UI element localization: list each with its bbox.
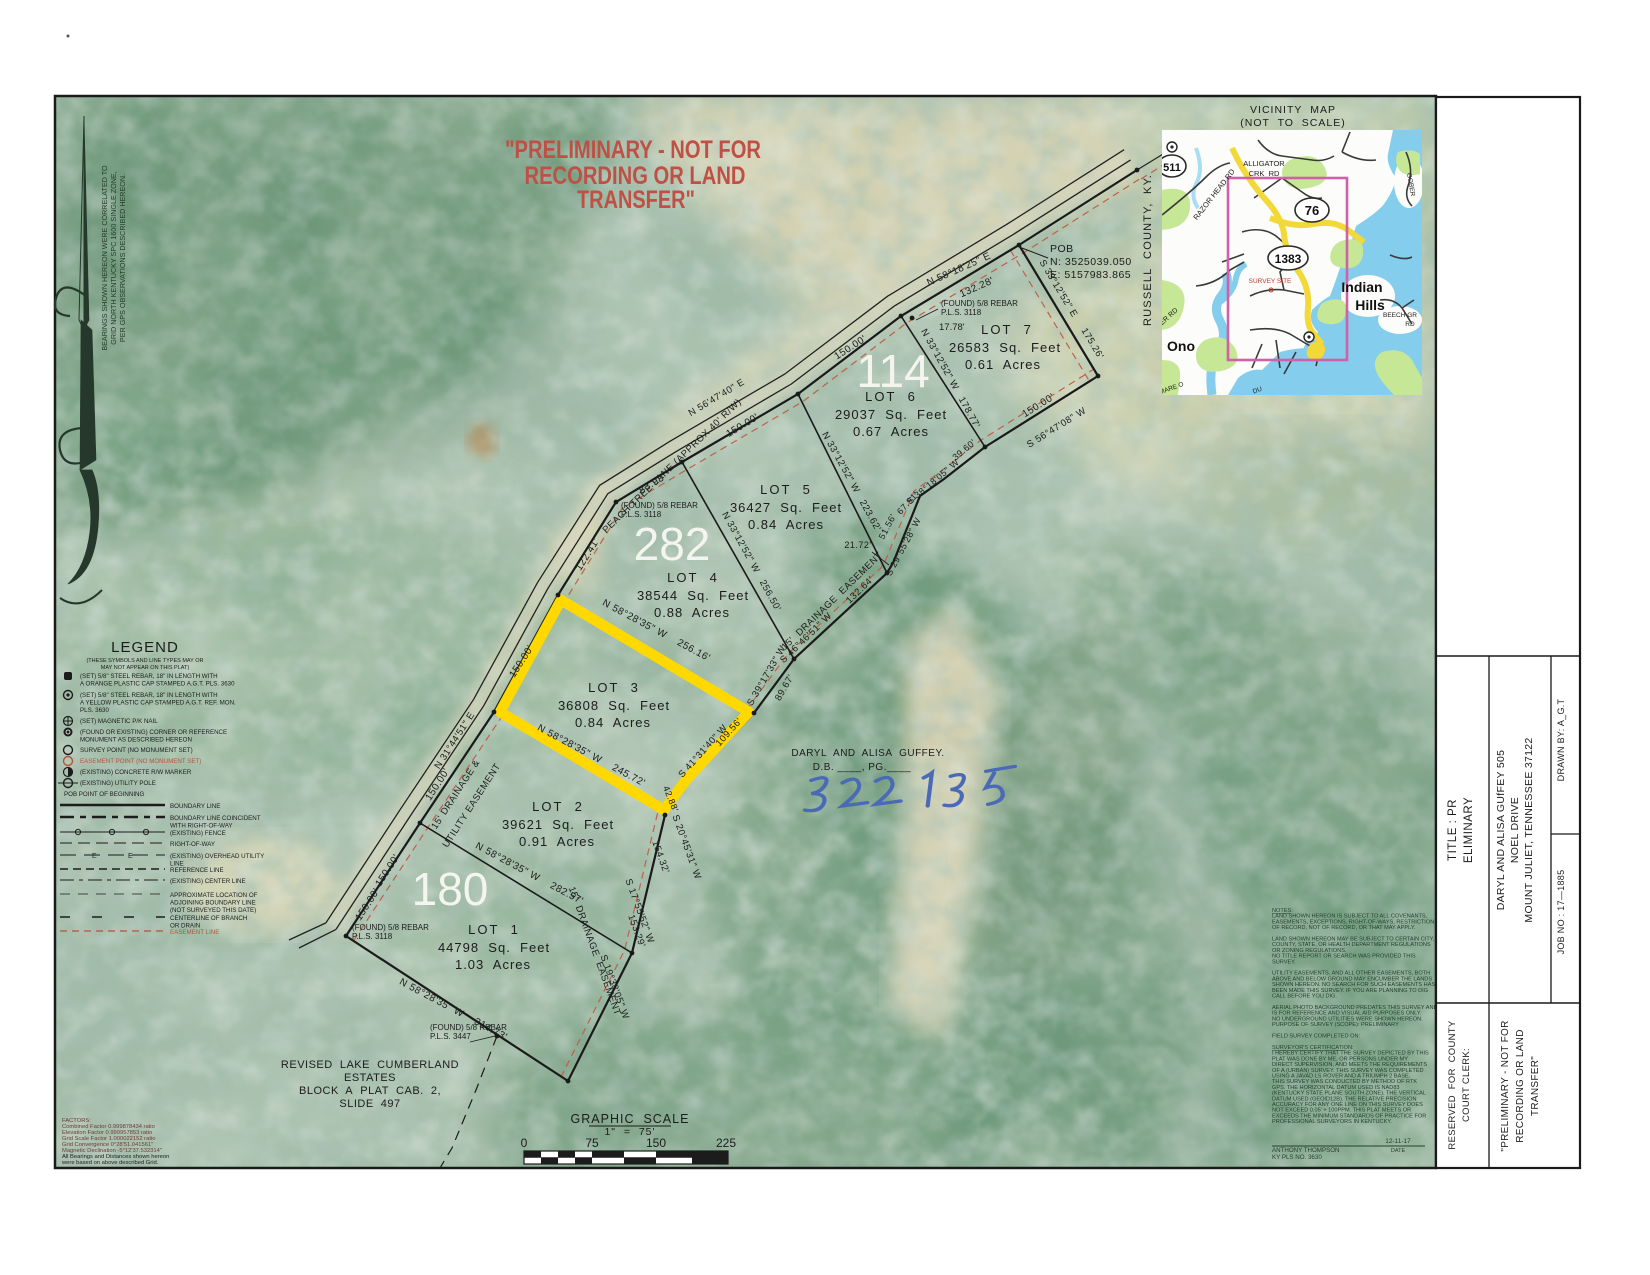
svg-text:"PRELIMINARY - NOT FOR: "PRELIMINARY - NOT FOR [505,136,761,164]
svg-text:VICINITY MAP: VICINITY MAP [1250,104,1336,116]
svg-text:44798 Sq. Feet: 44798 Sq. Feet [438,940,550,955]
svg-text:(SET) 5/8" STEEL REBAR, 18" IN: (SET) 5/8" STEEL REBAR, 18" IN LENGTH WI… [80,673,218,680]
svg-text:(FOUND) 5/8 REBAR: (FOUND) 5/8 REBAR [941,299,1018,308]
svg-text:75: 75 [585,1136,599,1150]
svg-text:MOUNT JULIET, TENNESSEE 37122: MOUNT JULIET, TENNESSEE 37122 [1523,737,1535,922]
svg-text:DRAWN BY: A_G.T: DRAWN BY: A_G.T [1556,698,1566,781]
svg-text:EASEMENT POINT (NO MONUMENT SE: EASEMENT POINT (NO MONUMENT SET) [80,758,201,765]
svg-text:A YELLOW PLASTIC CAP STAMPED A: A YELLOW PLASTIC CAP STAMPED A.G.T. REF.… [80,700,236,707]
svg-text:E: E [92,853,97,860]
svg-text:76: 76 [1305,203,1319,218]
svg-text:(EXISTING) FENCE: (EXISTING) FENCE [170,830,226,837]
svg-text:POB POINT OF BEGINNING: POB POINT OF BEGINNING [64,791,145,798]
svg-text:1.03 Acres: 1.03 Acres [455,957,531,972]
svg-text:1383: 1383 [1275,252,1302,266]
svg-text:BOUNDARY LINE COINCIDENT: BOUNDARY LINE COINCIDENT [170,815,261,822]
svg-text:were based on above described: were based on above described Grid. [61,1160,159,1166]
svg-text:(FOUND) 5/8 REBAR: (FOUND) 5/8 REBAR [621,501,698,510]
svg-text:P.L.S. 3118: P.L.S. 3118 [621,510,662,519]
svg-text:150: 150 [646,1136,666,1150]
svg-text:180: 180 [412,863,489,915]
svg-text:29037 Sq. Feet: 29037 Sq. Feet [835,407,947,422]
svg-text:FIELD SURVEY COMPLETED ON:: FIELD SURVEY COMPLETED ON: [1272,1033,1361,1039]
svg-text:BEARINGS SHOWN HEREON WERE COR: BEARINGS SHOWN HEREON WERE CORRELATED TO [100,165,109,351]
svg-text:LOT 6: LOT 6 [865,389,917,404]
svg-text:SLIDE 497: SLIDE 497 [339,1098,400,1110]
svg-text:0.84 Acres: 0.84 Acres [748,517,824,532]
svg-text:SURVEY POINT (NO MONUMENT SET): SURVEY POINT (NO MONUMENT SET) [80,747,193,754]
svg-text:12-11-17: 12-11-17 [1385,1138,1411,1145]
svg-text:N: 3525039.050: N: 3525039.050 [1050,256,1132,268]
svg-text:REFERENCE LINE: REFERENCE LINE [170,867,224,874]
svg-text:DARYL AND ALISA GUfFEY 505: DARYL AND ALISA GUfFEY 505 [1495,750,1507,911]
svg-text:36808 Sq. Feet: 36808 Sq. Feet [558,698,670,713]
svg-text:BOUNDARY LINE: BOUNDARY LINE [170,803,220,810]
svg-text:PER GPS OBSERVATIONS DESCRIBED: PER GPS OBSERVATIONS DESCRIBED HEREON. [118,174,127,342]
svg-text:CRK RD: CRK RD [1249,169,1280,178]
svg-text:Indian: Indian [1341,279,1382,295]
svg-text:LOT 7: LOT 7 [981,322,1033,337]
svg-text:(FOUND) 5/8 REBAR: (FOUND) 5/8 REBAR [430,1023,507,1032]
svg-text:RESERVED FOR COUNTY: RESERVED FOR COUNTY [1447,1020,1458,1149]
svg-text:(EXISTING) CONCRETE R/W MARKER: (EXISTING) CONCRETE R/W MARKER [80,769,192,776]
svg-text:TRANSFER": TRANSFER" [577,186,695,214]
svg-text:LOT 1: LOT 1 [468,922,520,937]
svg-text:(SET) MAGNETIC P/K NAIL: (SET) MAGNETIC P/K NAIL [80,718,158,725]
svg-text:17.78': 17.78' [939,322,965,333]
svg-text:(SET) 5/8" STEEL REBAR, 18" IN: (SET) 5/8" STEEL REBAR, 18" IN LENGTH WI… [80,692,218,699]
svg-text:BEECH GR: BEECH GR [1383,312,1417,319]
svg-text:26583 Sq. Feet: 26583 Sq. Feet [949,340,1061,355]
svg-text:GRAPHIC SCALE: GRAPHIC SCALE [571,1112,690,1126]
svg-text:WITH RIGHT-OF-WAY: WITH RIGHT-OF-WAY [170,822,233,829]
svg-text:282: 282 [634,518,711,570]
svg-text:(EXISTING) CENTER LINE: (EXISTING) CENTER LINE [170,878,246,885]
svg-text:BLOCK A PLAT CAB. 2,: BLOCK A PLAT CAB. 2, [299,1085,441,1097]
svg-text:DATE: DATE [1391,1148,1406,1154]
svg-text:0.67 Acres: 0.67 Acres [853,424,929,439]
svg-text:KY PLS NO. 3630: KY PLS NO. 3630 [1272,1154,1322,1161]
svg-text:LEGEND: LEGEND [111,639,179,656]
svg-text:GRID NORTH KENTUCKY SPC 1600 S: GRID NORTH KENTUCKY SPC 1600 SINGLE ZONE… [109,171,118,344]
svg-text:MONUMENT AS DESCRIBED HEREON: MONUMENT AS DESCRIBED HEREON [80,737,192,744]
svg-text:36427 Sq. Feet: 36427 Sq. Feet [730,500,842,515]
svg-text:(NOT SURVEYED THIS DATE): (NOT SURVEYED THIS DATE) [170,907,256,914]
svg-text:0.61 Acres: 0.61 Acres [965,357,1041,372]
svg-text:P.L.S. 3118: P.L.S. 3118 [352,932,393,941]
svg-text:0.88 Acres: 0.88 Acres [654,605,730,620]
svg-text:CALL BEFORE YOU DIG.: CALL BEFORE YOU DIG. [1272,994,1337,1000]
svg-text:D.B. ____, PG.____: D.B. ____, PG.____ [813,762,912,773]
svg-text:ADJOINING BOUNDARY LINE: ADJOINING BOUNDARY LINE [170,899,256,906]
svg-text:NOEL DRIVE: NOEL DRIVE [1509,797,1521,863]
svg-text:COURT CLERK:: COURT CLERK: [1461,1048,1472,1122]
svg-text:LOT 3: LOT 3 [588,680,640,695]
svg-text:ELIMINARY: ELIMINARY [1463,797,1475,863]
svg-text:APPROXIMATE LOCATION OF: APPROXIMATE LOCATION OF [170,892,258,899]
svg-text:ANTHONY THOMPSON: ANTHONY THOMPSON [1272,1147,1340,1154]
svg-text:LOT 5: LOT 5 [760,482,812,497]
svg-text:ESTATES: ESTATES [344,1072,396,1084]
svg-text:38544 Sq. Feet: 38544 Sq. Feet [637,588,749,603]
svg-text:OF RECORD, NOT OF RECORD, OR T: OF RECORD, NOT OF RECORD, OR THAT MAY AP… [1272,925,1416,931]
svg-text:TRANSFER": TRANSFER" [1530,1056,1541,1116]
svg-text:SURVEY SITE: SURVEY SITE [1249,278,1292,285]
svg-text:LOT 2: LOT 2 [532,799,584,814]
svg-text:E: 5157983.865: E: 5157983.865 [1050,269,1131,281]
svg-text:PROFESSIONAL SURVEYORS IN KENT: PROFESSIONAL SURVEYORS IN KENTUCKY. [1272,1119,1392,1125]
svg-text:Hills: Hills [1355,297,1385,313]
svg-text:225: 225 [716,1136,736,1150]
svg-text:(EXISTING) UTILITY POLE: (EXISTING) UTILITY POLE [80,780,156,787]
svg-text:RIGHT-OF-WAY: RIGHT-OF-WAY [170,841,215,848]
svg-text:(EXISTING) OVERHEAD UTILITY: (EXISTING) OVERHEAD UTILITY [170,853,264,860]
svg-text:MAY NOT APPEAR ON THIS PLAT): MAY NOT APPEAR ON THIS PLAT) [101,665,190,671]
svg-text:P.L.S. 3447: P.L.S. 3447 [430,1032,471,1041]
svg-text:E: E [128,853,133,860]
svg-text:511: 511 [1163,162,1181,174]
svg-text:REVISED LAKE CUMBERLAND: REVISED LAKE CUMBERLAND [281,1059,459,1071]
svg-text:RECORDING OR LAND: RECORDING OR LAND [1515,1029,1526,1142]
svg-text:SURVEY.: SURVEY. [1272,959,1296,965]
svg-text:LOT 4: LOT 4 [667,570,719,585]
svg-text:0: 0 [521,1136,528,1150]
svg-text:POB: POB [1050,243,1074,255]
svg-text:(FOUND OR EXISTING) CORNER OR: (FOUND OR EXISTING) CORNER OR REFERENCE [80,729,227,736]
svg-text:(NOT TO SCALE): (NOT TO SCALE) [1240,117,1345,129]
svg-text:RD: RD [1405,321,1415,328]
svg-text:0.91 Acres: 0.91 Acres [519,834,595,849]
svg-text:(THESE SYMBOLS AND LINE TYPES: (THESE SYMBOLS AND LINE TYPES MAY OR [86,658,203,664]
svg-text:CENTERLINE OF BRANCH: CENTERLINE OF BRANCH [170,915,247,922]
svg-text:"PRELIMINARY - NOT FOR: "PRELIMINARY - NOT FOR [1500,1020,1511,1151]
svg-text:Ono: Ono [1167,338,1195,354]
svg-text:JOB NO : 17—1885: JOB NO : 17—1885 [1556,870,1566,955]
svg-text:ALLIGATOR: ALLIGATOR [1243,159,1285,168]
svg-text:P.L.S. 3118: P.L.S. 3118 [941,308,982,317]
svg-text:DARYL AND ALISA GUFFEY.: DARYL AND ALISA GUFFEY. [791,748,944,759]
svg-text:39621 Sq. Feet: 39621 Sq. Feet [502,817,614,832]
svg-text:PURPOSE OF SURVEY (SCOPE): PR: PURPOSE OF SURVEY (SCOPE): PRELIMINARY [1272,1022,1399,1028]
svg-text:A ORANGE PLASTIC CAP STAMPED A: A ORANGE PLASTIC CAP STAMPED A.G.T. PLS.… [80,681,235,688]
svg-text:EASEMENT LINE: EASEMENT LINE [170,929,219,936]
svg-text:0.84 Acres: 0.84 Acres [575,715,651,730]
svg-text:(FOUND) 5/8 REBAR: (FOUND) 5/8 REBAR [352,923,429,932]
svg-text:TITLE : PR: TITLE : PR [1447,799,1459,861]
svg-text:RUSSELL COUNTY, KY.: RUSSELL COUNTY, KY. [1142,174,1154,326]
svg-text:21.72': 21.72' [844,540,871,550]
svg-text:PLS. 3630: PLS. 3630 [80,707,109,714]
